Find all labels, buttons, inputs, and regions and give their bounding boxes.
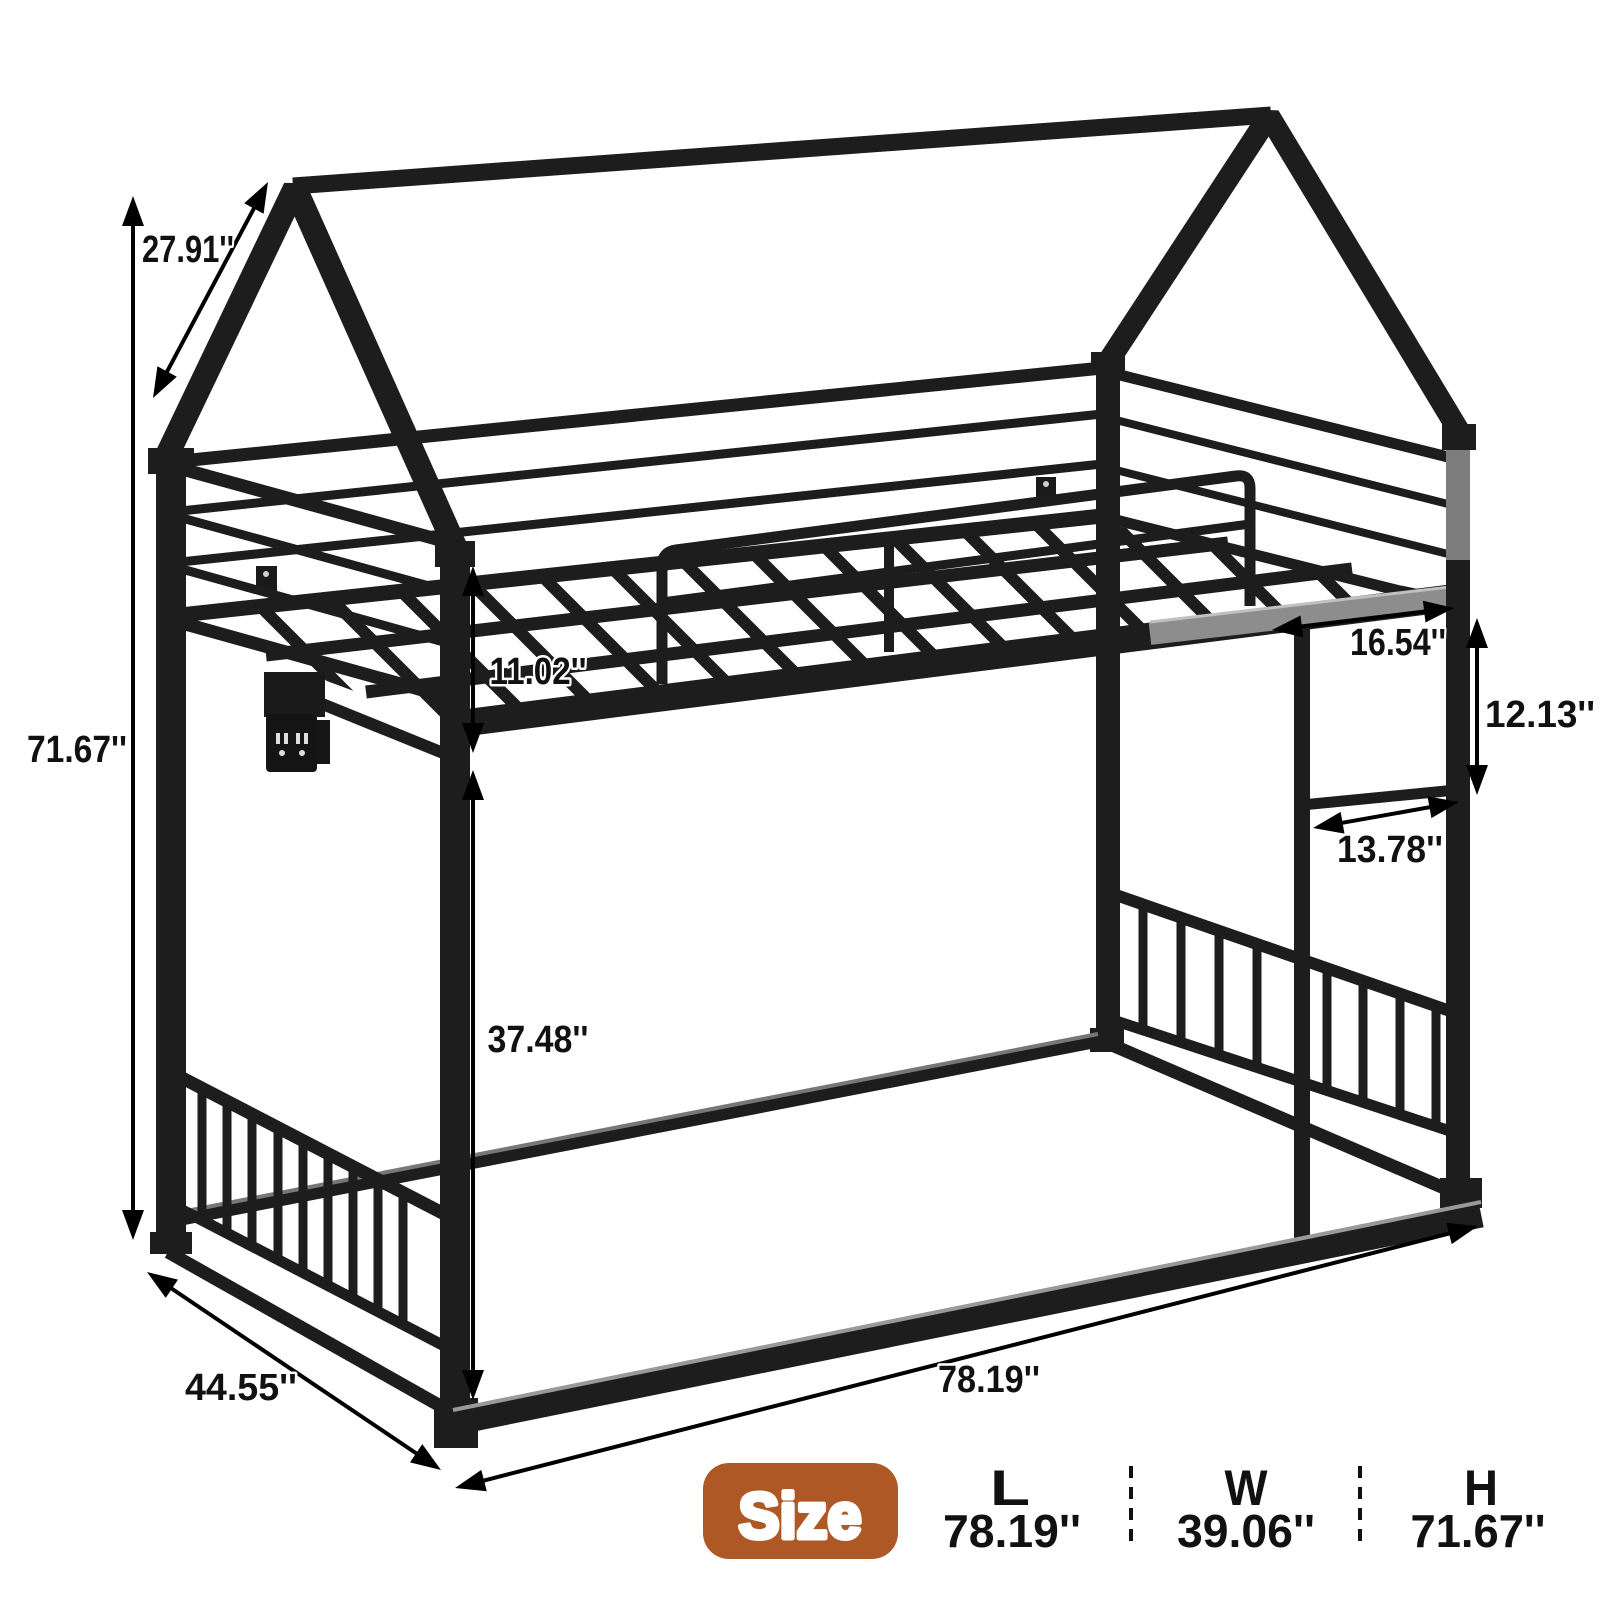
svg-text:13.78'': 13.78'' xyxy=(1337,829,1443,871)
svg-text:27.91'': 27.91'' xyxy=(142,229,234,271)
svg-text:71.67'': 71.67'' xyxy=(1411,1505,1546,1557)
svg-text:16.54'': 16.54'' xyxy=(1350,622,1446,664)
svg-text:44.55'': 44.55'' xyxy=(185,1367,297,1409)
svg-text:78.19'': 78.19'' xyxy=(943,1505,1081,1557)
svg-text:37.48'': 37.48'' xyxy=(488,1019,589,1061)
svg-text:Size: Size xyxy=(739,1480,862,1552)
svg-text:12.13'': 12.13'' xyxy=(1485,694,1595,736)
svg-text:71.67'': 71.67'' xyxy=(27,729,127,771)
svg-text:11.02'': 11.02'' xyxy=(490,651,587,693)
svg-text:78.19'': 78.19'' xyxy=(938,1359,1040,1401)
svg-text:39.06'': 39.06'' xyxy=(1177,1505,1315,1557)
